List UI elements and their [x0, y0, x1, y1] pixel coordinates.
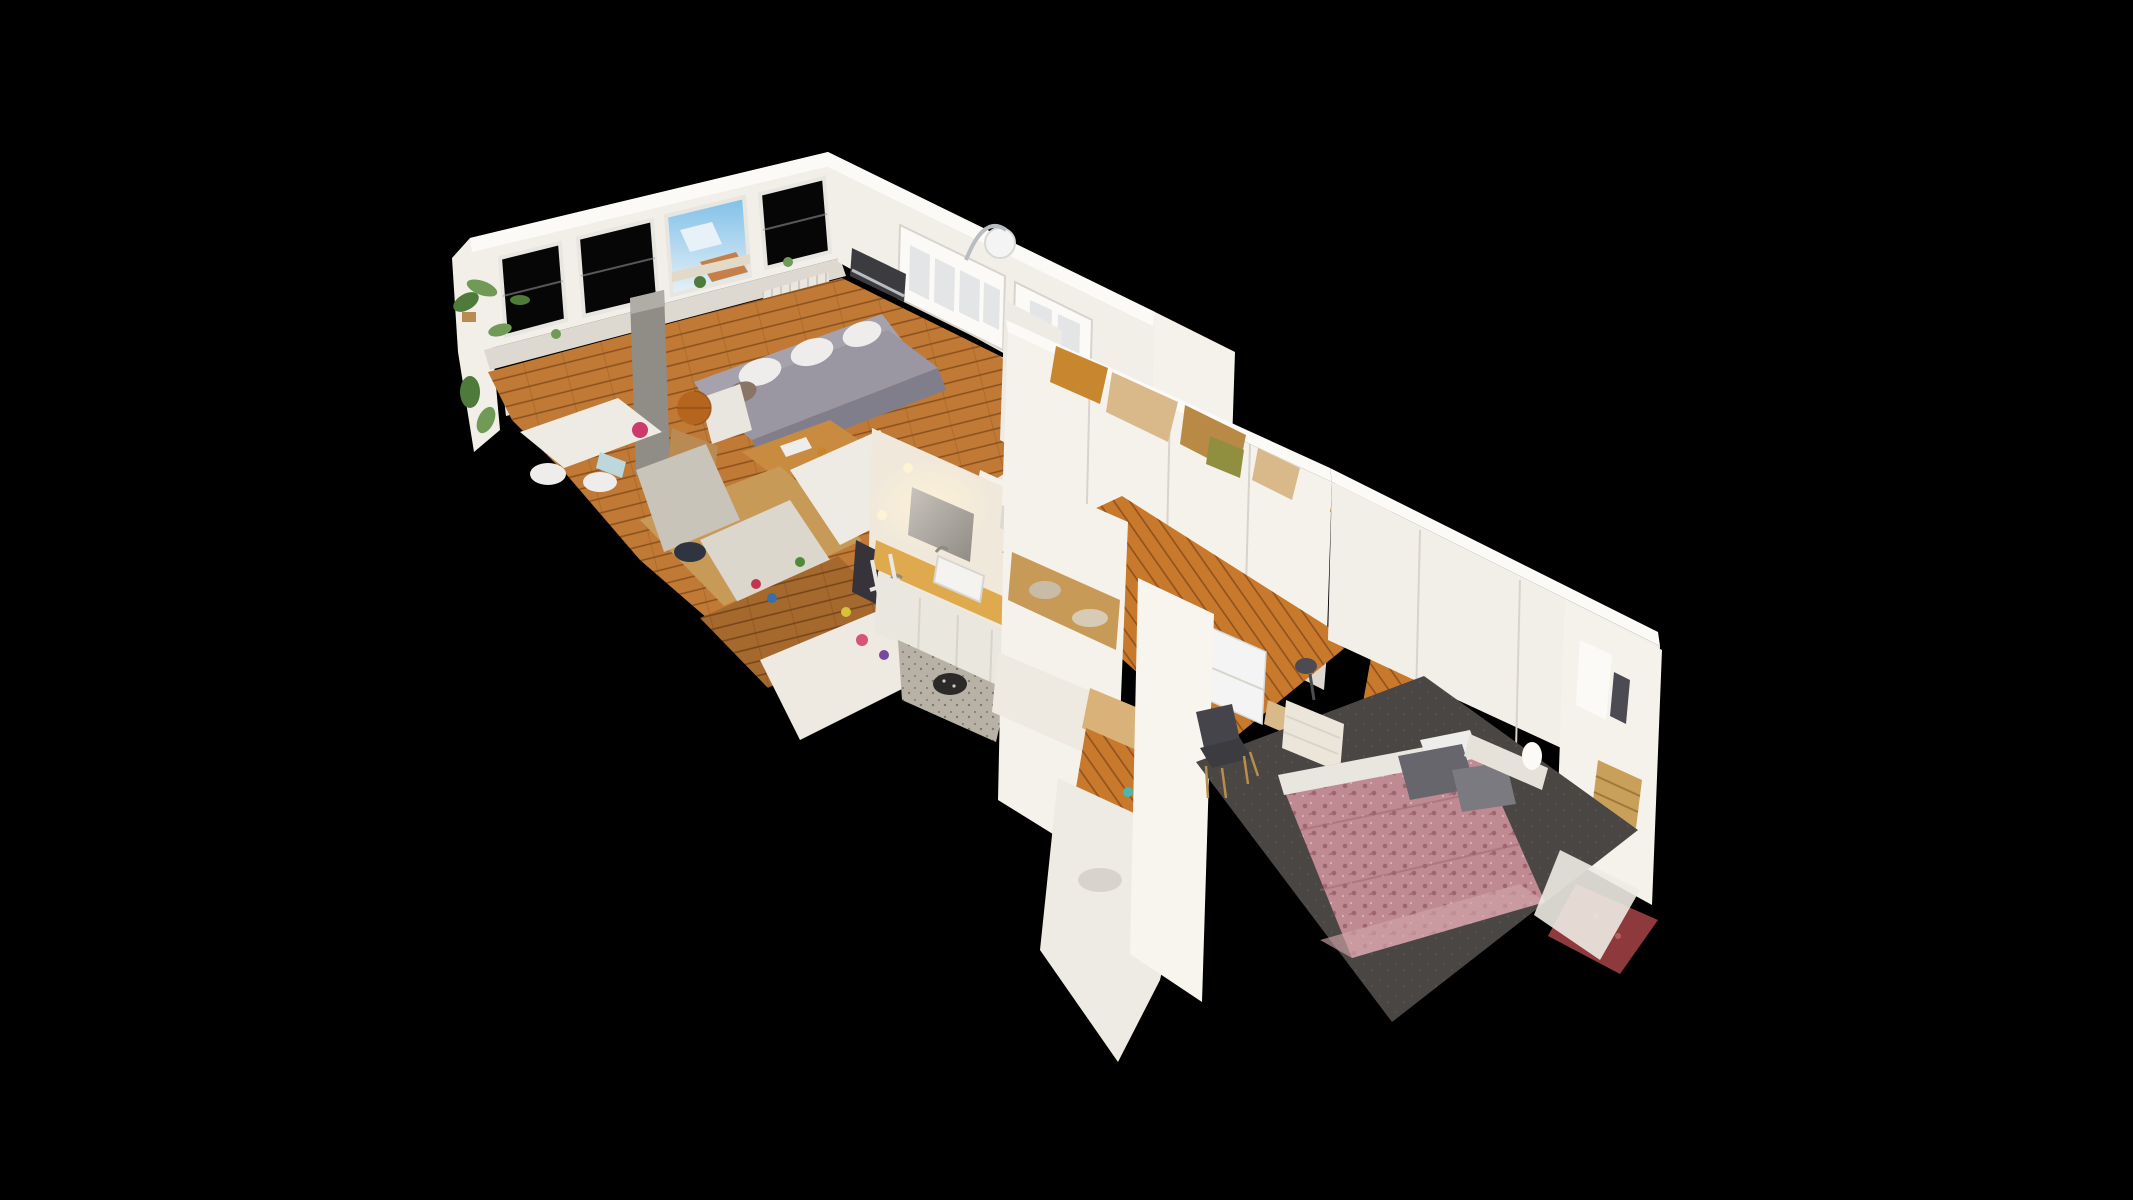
glass-pane	[983, 282, 1000, 330]
clothes-speck	[795, 557, 805, 567]
clothes-speck	[767, 593, 777, 603]
clothes-speck	[879, 650, 889, 660]
sill-plant	[551, 329, 561, 339]
plant-leaf	[460, 376, 480, 408]
sill-plant	[783, 257, 793, 267]
wall-sconce	[877, 510, 887, 520]
plant-leaf	[510, 295, 530, 305]
sill-plant	[694, 276, 706, 288]
slot-grey-patch	[1072, 609, 1108, 627]
stool-hole	[952, 684, 955, 687]
desk-chair-dark	[674, 542, 706, 562]
tail-smudge	[1078, 868, 1122, 892]
clothes-speck	[841, 607, 851, 617]
white-chair	[583, 472, 617, 492]
stool-hole	[942, 679, 945, 682]
black-stool	[933, 673, 967, 695]
wall-sconce	[903, 463, 913, 473]
plant-pot	[462, 312, 476, 322]
white-chair	[530, 463, 566, 485]
panel-sheet-tall	[1130, 578, 1214, 1002]
teal-speck	[1123, 787, 1133, 797]
clothes-speck	[856, 634, 868, 646]
bedside-lamp	[1295, 658, 1317, 674]
dollhouse-render	[0, 0, 2133, 1200]
viewer-canvas[interactable]	[0, 0, 2133, 1200]
right-lamp	[1522, 742, 1542, 770]
pendant-lamp	[985, 228, 1015, 258]
clothes-speck	[751, 579, 761, 589]
magenta-object	[632, 422, 648, 438]
slot-grey-patch	[1029, 581, 1061, 599]
rug-motif	[1615, 933, 1621, 939]
grey-column	[630, 290, 670, 476]
